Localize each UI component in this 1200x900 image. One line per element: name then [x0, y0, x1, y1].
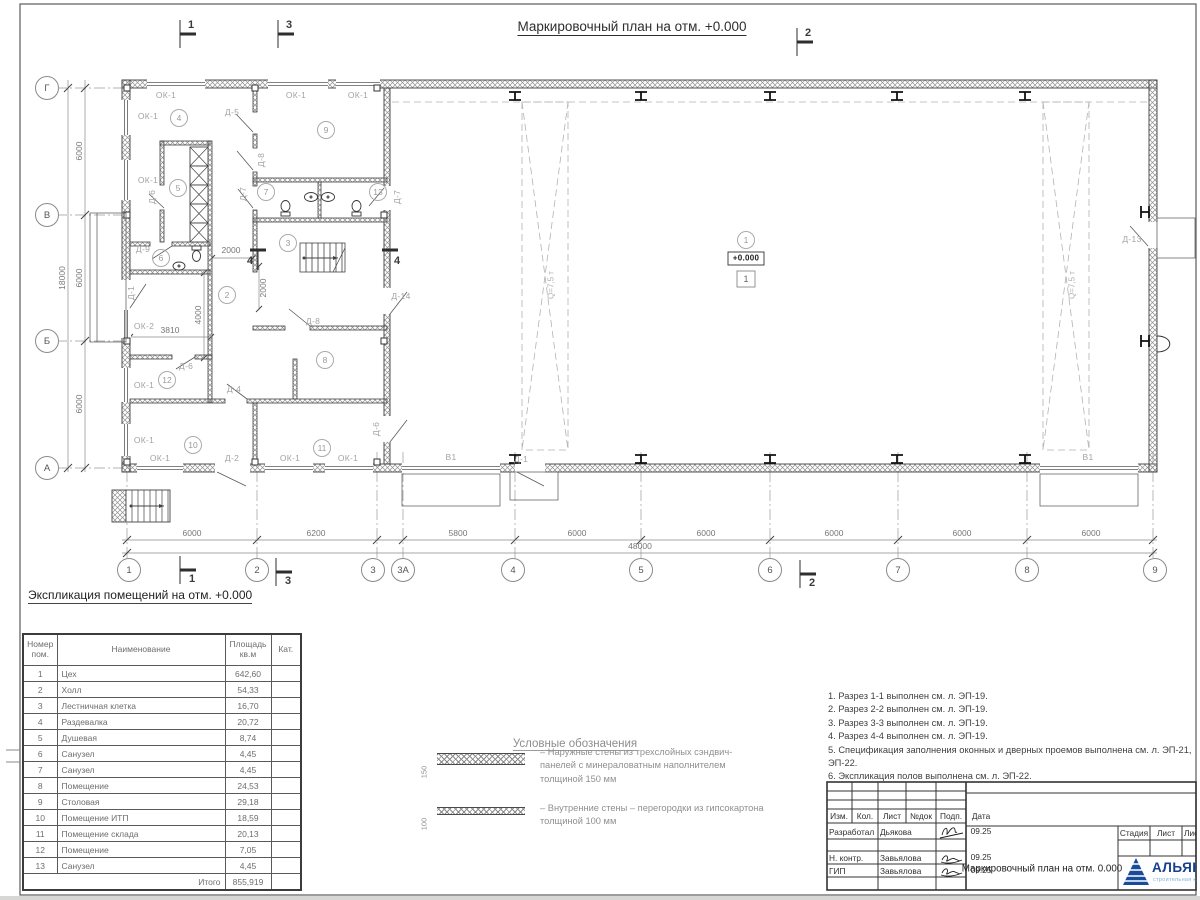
scan-edge: [0, 896, 1200, 900]
cell-cat: [271, 842, 301, 858]
section-number: 4: [247, 255, 253, 267]
table-row: 9 Столовая 29,18: [23, 794, 301, 810]
opening-label: Д-8: [256, 153, 266, 167]
section-number: 3: [286, 19, 292, 31]
dimension-label: 6000: [74, 142, 84, 161]
room-number-mark: 8: [316, 351, 334, 369]
cell-area: 8,74: [225, 730, 271, 746]
table-row: 5 Душевая 8,74: [23, 730, 301, 746]
legend-dim-100: 100: [420, 818, 429, 831]
note-line: 3. Разрез 3-3 выполнен см. л. ЭП-19.: [828, 717, 1198, 730]
steel-columns: [509, 92, 1149, 463]
grid-bubble: А: [35, 456, 59, 480]
cell-name: Санузел: [57, 746, 225, 762]
dimension-label: 6000: [183, 528, 202, 538]
tb-role-0: Разработал: [829, 827, 874, 837]
opening-label: ОК-2: [134, 321, 154, 331]
tb-date-1: 09.25: [971, 852, 992, 862]
table-row: 13 Санузел 4,45: [23, 858, 301, 874]
cell-num: 1: [23, 666, 57, 682]
room-number-mark: 13: [369, 183, 387, 201]
dimension-label: 6000: [953, 528, 972, 538]
crane-symbols: [392, 102, 1148, 450]
grid-bubble: 3: [361, 558, 385, 582]
notes-list: 1. Разрез 1-1 выполнен см. л. ЭП-19.2. Р…: [828, 690, 1198, 784]
tb-role-1: Н. контр.: [829, 853, 863, 863]
dimension-ticks: [64, 84, 1157, 557]
dimension-label: 6000: [568, 528, 587, 538]
dimension-label: 2000: [222, 245, 241, 255]
room-number-mark: 12: [158, 371, 176, 389]
shower-stalls: [190, 147, 208, 242]
tb-col-ndok: №док: [910, 811, 932, 821]
opening-label: ОК-1: [134, 380, 154, 390]
grid-bubble: В: [35, 203, 59, 227]
opening-label: ОК-1: [138, 111, 158, 121]
cell-name: Санузел: [57, 858, 225, 874]
cell-cat: [271, 794, 301, 810]
grid-bubble: 2: [245, 558, 269, 582]
interior-stair: [300, 243, 345, 272]
grid-bubble: 9: [1143, 558, 1167, 582]
cell-num: 13: [23, 858, 57, 874]
grid-bubble: 6: [758, 558, 782, 582]
table-row: 4 Раздевалка 20,72: [23, 714, 301, 730]
cell-num: 5: [23, 730, 57, 746]
partitions: [130, 88, 387, 464]
cell-area: 16,70: [225, 698, 271, 714]
note-line: 2. Разрез 2-2 выполнен см. л. ЭП-19.: [828, 703, 1198, 716]
cell-area: 4,45: [225, 858, 271, 874]
table-row: 1 Цех 642,60: [23, 666, 301, 682]
opening-label: ОК-1: [280, 453, 300, 463]
opening-label: Д-14: [391, 291, 410, 301]
cell-name: Раздевалка: [57, 714, 225, 730]
grid-bubble: 8: [1015, 558, 1039, 582]
section-flags: [180, 20, 816, 588]
cell-num: 2: [23, 682, 57, 698]
opening-label: Д-7: [392, 190, 402, 204]
cell-num: 9: [23, 794, 57, 810]
room-number-mark: 9: [317, 121, 335, 139]
grid-bubble: 3А: [391, 558, 415, 582]
tb-stage: Стадия: [1120, 828, 1148, 838]
grid-bubble: 5: [629, 558, 653, 582]
cell-num: 7: [23, 762, 57, 778]
opening-label: Д-4: [227, 384, 241, 394]
cell-num: 4: [23, 714, 57, 730]
cell-area: 20,13: [225, 826, 271, 842]
grid-bubble: 1: [117, 558, 141, 582]
note-line: 4. Разрез 4-4 выполнен см. л. ЭП-19.: [828, 730, 1198, 743]
cell-name: Санузел: [57, 762, 225, 778]
cell-area: 4,45: [225, 746, 271, 762]
window-lines: [125, 83, 1139, 470]
opening-label: Д-9: [136, 244, 150, 254]
cell-area: 18,59: [225, 810, 271, 826]
opening-label: В1: [446, 452, 457, 462]
dimension-label: 3810: [161, 325, 180, 335]
opening-label: Д-5: [225, 107, 239, 117]
cell-num: 11: [23, 826, 57, 842]
drawing-sheet: { "page_title": "Маркировочный план на о…: [0, 0, 1200, 900]
legend-wall-symbol-exterior: [437, 753, 525, 765]
dimension-lines: [68, 80, 1157, 553]
tb-col-list: Лист: [883, 811, 901, 821]
elevation-mark: +0.000: [733, 254, 760, 263]
section-number: 1: [189, 573, 195, 585]
cell-area: 54,33: [225, 682, 271, 698]
dimension-label: 5800: [449, 528, 468, 538]
table-row: 8 Помещение 24,53: [23, 778, 301, 794]
tb-role-2: ГИП: [829, 866, 845, 876]
cell-name: Помещение: [57, 778, 225, 794]
table-row: 11 Помещение склада 20,13: [23, 826, 301, 842]
opening-label: Д-7: [238, 187, 248, 201]
room-number-mark: 10: [184, 436, 202, 454]
crane-capacity-label: Q=7,5 т: [1068, 271, 1077, 299]
grid-bubble: Г: [35, 76, 59, 100]
opening-label: ОК-1: [338, 453, 358, 463]
section-number: 2: [809, 577, 815, 589]
floor-type-mark: 1: [743, 274, 748, 284]
opening-label: ОК-1: [348, 90, 368, 100]
cell-cat: [271, 858, 301, 874]
opening-label: ОК-1: [138, 175, 158, 185]
dimension-label: 6000: [1082, 528, 1101, 538]
logo-text: АЛЬЯНС: [1152, 860, 1196, 875]
opening-label: В1: [1083, 452, 1094, 462]
tb-sheet: Лист: [1157, 828, 1175, 838]
tb-sheets: Листов: [1184, 828, 1196, 838]
cell-area: 20,72: [225, 714, 271, 730]
legend-wall-symbol-interior: [437, 807, 525, 815]
cell-cat: [271, 666, 301, 682]
opening-label: Д-6: [179, 361, 193, 371]
section-number: 4: [394, 255, 400, 267]
table-row: 10 Помещение ИТП 18,59: [23, 810, 301, 826]
cell-area: 24,53: [225, 778, 271, 794]
cell-cat: [271, 714, 301, 730]
col-header-name: Наименование: [57, 634, 225, 666]
cell-name: Холл: [57, 682, 225, 698]
section-number: 3: [285, 575, 291, 587]
opening-label: Д-8: [306, 316, 320, 326]
table-row: 2 Холл 54,33: [23, 682, 301, 698]
cell-cat: [271, 810, 301, 826]
cell-area: 29,18: [225, 794, 271, 810]
total-cat: [271, 874, 301, 891]
dimension-label: 6000: [74, 395, 84, 414]
table-total-row: Итого 855,919: [23, 874, 301, 891]
col-header-cat: Кат.: [271, 634, 301, 666]
table-row: 6 Санузел 4,45: [23, 746, 301, 762]
note-line: 6. Экспликация полов выполнена см. л. ЭП…: [828, 770, 1198, 783]
dimension-label: 48000: [628, 541, 652, 551]
total-area: 855,919: [225, 874, 271, 891]
note-line: 5. Спецификация заполнения оконных и две…: [828, 744, 1198, 771]
tb-col-kol: Кол.: [857, 811, 873, 821]
page-title: Маркировочный план на отм. +0.000: [517, 19, 746, 36]
door-swings: [130, 114, 1148, 486]
logo-subtitle: строительная компания: [1153, 877, 1196, 883]
crane-capacity-label: Q=7,5 т: [547, 271, 556, 299]
room-number-mark: 11: [313, 439, 331, 457]
col-header-num: Номер пом.: [23, 634, 57, 666]
cell-name: Лестничная клетка: [57, 698, 225, 714]
room-number-mark: 6: [152, 249, 170, 267]
opening-label: Д-13: [1122, 234, 1141, 244]
dimension-label: 6000: [74, 269, 84, 288]
tb-name-0: Дьякова: [880, 827, 912, 837]
room-number-mark: 2: [218, 286, 236, 304]
opening-label: Д-6: [371, 422, 381, 436]
cell-cat: [271, 682, 301, 698]
dimension-label: 6000: [697, 528, 716, 538]
room-number-mark: 3: [279, 234, 297, 252]
cell-num: 3: [23, 698, 57, 714]
room-number-mark: 1: [737, 231, 755, 249]
table-row: 7 Санузел 4,45: [23, 762, 301, 778]
opening-label: Д-2: [225, 453, 239, 463]
cell-name: Помещение: [57, 842, 225, 858]
signatures: [940, 828, 963, 876]
tb-col-izm: Изм.: [830, 811, 848, 821]
legend-text-interior: – Внутренние стены – перегородки из гипс…: [540, 802, 775, 829]
room-number-mark: 7: [257, 183, 275, 201]
tb-name-2: Завьялова: [880, 866, 921, 876]
table-row: 3 Лестничная клетка 16,70: [23, 698, 301, 714]
col-header-area: Площадь кв.м: [225, 634, 271, 666]
cell-num: 10: [23, 810, 57, 826]
cell-cat: [271, 762, 301, 778]
grid-bubble: 4: [501, 558, 525, 582]
total-label: Итого: [23, 874, 225, 891]
cell-area: 7,05: [225, 842, 271, 858]
dimension-label: 6000: [825, 528, 844, 538]
tb-col-podp: Подп.: [940, 811, 962, 821]
cell-name: Помещение склада: [57, 826, 225, 842]
note-line: 1. Разрез 1-1 выполнен см. л. ЭП-19.: [828, 690, 1198, 703]
grid-axes: [56, 88, 1153, 558]
opening-label: ОК-1: [150, 453, 170, 463]
legend-text-exterior: – Наружные стены из трехслойных сэндвич-…: [540, 746, 754, 786]
opening-label: ОК-1: [286, 90, 306, 100]
cell-num: 12: [23, 842, 57, 858]
dimension-label: 4000: [193, 306, 203, 325]
schedule-heading: Экспликация помещений на отм. +0.000: [28, 588, 252, 604]
opening-label: Д-6: [147, 190, 157, 204]
wall-openings: [121, 79, 1158, 473]
cell-name: Душевая: [57, 730, 225, 746]
legend-dim-150: 150: [420, 766, 429, 779]
room-number-mark: 4: [170, 109, 188, 127]
dimension-label: 2000: [258, 279, 268, 298]
tb-col-data: Дата: [972, 811, 990, 821]
cell-cat: [271, 698, 301, 714]
opening-label: Д-1: [126, 286, 136, 300]
tb-name-1: Завьялова: [880, 853, 921, 863]
cell-cat: [271, 746, 301, 762]
grid-bubble: 7: [886, 558, 910, 582]
cell-cat: [271, 826, 301, 842]
cell-name: Помещение ИТП: [57, 810, 225, 826]
opening-label: ОК-1: [134, 435, 154, 445]
cell-name: Столовая: [57, 794, 225, 810]
cell-area: 4,45: [225, 762, 271, 778]
outer-walls: [122, 80, 1157, 472]
dimension-label: 18000: [57, 266, 67, 290]
cell-area: 642,60: [225, 666, 271, 682]
table-header-row: Номер пом. Наименование Площадь кв.м Кат…: [23, 634, 301, 666]
grid-bubble: Б: [35, 329, 59, 353]
room-number-mark: 5: [169, 179, 187, 197]
section-number: 2: [805, 27, 811, 39]
dimension-label: 6200: [307, 528, 326, 538]
exterior-stair: [112, 490, 170, 522]
company-logo: АЛЬЯНС строительная компания: [1119, 856, 1196, 889]
cell-cat: [271, 730, 301, 746]
tb-doc-title: Маркировочный план на отм. 0.000: [962, 864, 1123, 875]
cell-num: 8: [23, 778, 57, 794]
cell-num: 6: [23, 746, 57, 762]
opening-label: ОК-1: [156, 90, 176, 100]
cell-name: Цех: [57, 666, 225, 682]
table-row: 12 Помещение 7,05: [23, 842, 301, 858]
tb-date-0: 09.25: [971, 826, 992, 836]
cell-cat: [271, 778, 301, 794]
section-number: 1: [188, 19, 194, 31]
room-schedule-table: Номер пом. Наименование Площадь кв.м Кат…: [22, 633, 302, 891]
opening-label: Д-1: [514, 454, 528, 464]
